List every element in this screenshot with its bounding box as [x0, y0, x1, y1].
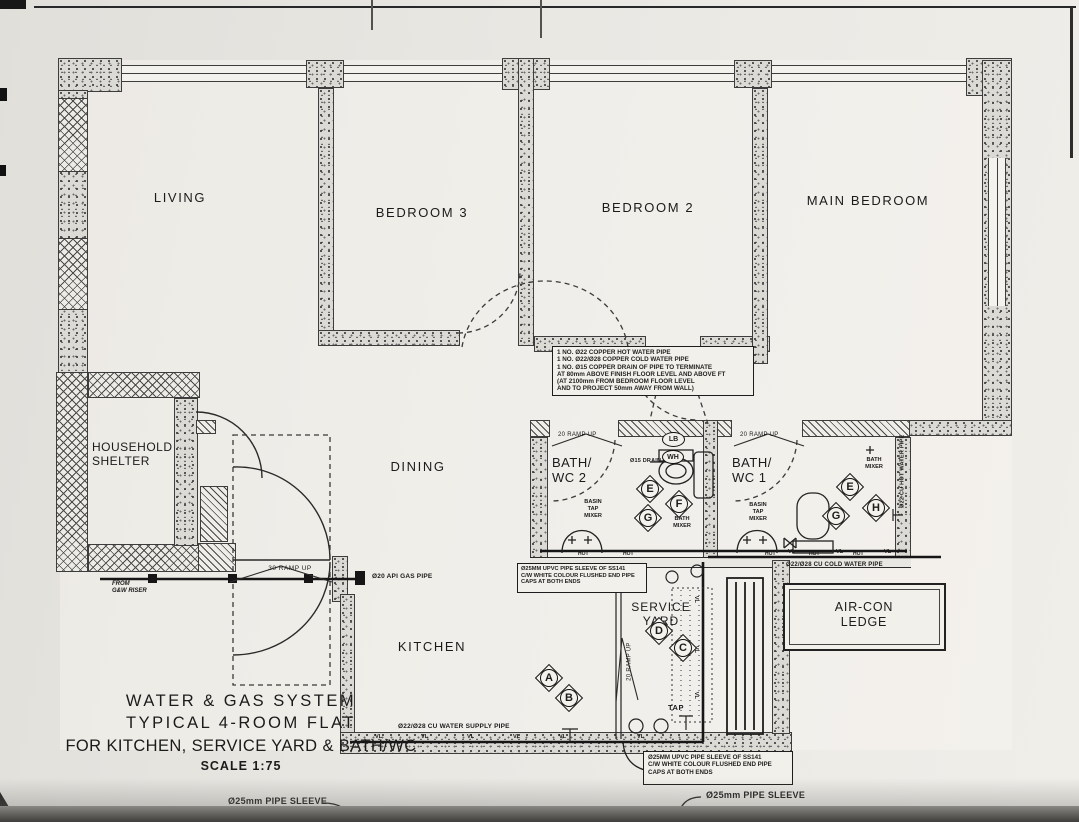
pipe-elbow-3 — [629, 719, 643, 733]
note-line: C/W WHITE COLOUR FLUSHED END PIPE — [648, 761, 788, 768]
bath1-mixer-symbol — [866, 446, 874, 454]
marker-letter: H — [867, 499, 885, 517]
title-line-1: WATER & GAS SYSTEM — [55, 692, 427, 711]
scan-shadow-band — [0, 778, 1079, 808]
riser-label: FROM G&W RISER — [112, 581, 147, 595]
vl-symbol: VL — [559, 734, 566, 741]
entrance-door-arc-upper — [233, 467, 330, 560]
ramp20-bath1-label: 20 RAMP UP — [740, 432, 779, 439]
bath-mixer-bath1: BATH MIXER — [852, 457, 896, 471]
hall-arch-dashed — [462, 281, 628, 347]
hot-symbol: HOT — [853, 552, 864, 558]
hot-symbol: HOT — [578, 552, 589, 558]
bath-mixer-bath2: BATH MIXER — [660, 516, 704, 530]
room-label-aircon-ledge: AIR-CON LEDGE — [808, 600, 920, 630]
basin-tap-mixer-bath2: BASIN TAP MIXER — [570, 499, 616, 520]
vl-symbol: VL — [884, 549, 891, 556]
pipe-marker-b: B — [557, 686, 581, 710]
room-label-dining: DINING — [368, 459, 468, 474]
bedroom3-door-arc — [458, 271, 520, 333]
vl-symbol: VL — [788, 549, 795, 556]
upvc-sleeve-note-mid: Ø25MM UPVC PIPE SLEEVE OF SS141 C/W WHIT… — [517, 563, 647, 593]
note-line: Ø25MM UPVC PIPE SLEEVE OF SS141 — [521, 566, 643, 573]
room-label-bath-wc-2: BATH/ WC 2 — [552, 455, 612, 486]
marker-letter: G — [639, 509, 657, 527]
vl-symbol: VL — [836, 549, 843, 556]
copper-pipe-note: 1 NO. Ø22 COPPER HOT WATER PIPE 1 NO. Ø2… — [552, 346, 754, 396]
note-line: AT 80mm ABOVE FINISH FLOOR LEVEL AND ABO… — [557, 371, 749, 378]
pipe-marker-g-bath2: G — [636, 506, 660, 530]
lb-tag: LB — [662, 432, 685, 447]
bath2-tub — [694, 452, 713, 498]
title-line-4: SCALE 1:75 — [55, 759, 427, 774]
title-line-2: TYPICAL 4-ROOM FLAT — [55, 714, 427, 733]
hot-symbol: HOT — [809, 552, 820, 558]
scan-tick-left-1 — [0, 88, 7, 101]
marker-letter: D — [650, 622, 668, 640]
scan-crease-1 — [371, 0, 373, 30]
note-line: 1 NO. Ø15 COPPER DRAIN OF PIPE TO TERMIN… — [557, 364, 749, 371]
bath1-basin-taps — [743, 536, 767, 544]
room-label-household-shelter: HOUSEHOLD SHELTER — [92, 440, 182, 468]
note-line: C/W WHITE COLOUR FLUSHED END PIPE — [521, 573, 643, 580]
room-label-bedroom3: BEDROOM 3 — [352, 205, 492, 220]
gas-pipe-end-fitting — [355, 571, 365, 585]
scan-crease-2 — [540, 0, 542, 38]
room-label-bedroom2: BEDROOM 2 — [578, 200, 718, 215]
pipe-marker-h-bath1: H — [864, 496, 888, 520]
note-line: Ø25MM UPVC PIPE SLEEVE OF SS141 — [648, 754, 788, 761]
pipe-elbow-2 — [691, 565, 703, 577]
pipe-elbow-4 — [654, 719, 668, 733]
hot-water-vertical-label: Ø22 CU HOT WATER PIPE — [900, 412, 907, 530]
sheet-border-top — [34, 6, 1076, 8]
bath1-valve — [784, 538, 796, 548]
vl-symbol: VL — [637, 734, 644, 741]
gas-pipe-label: Ø20 API GAS PIPE — [372, 573, 432, 581]
scan-mark-top-left — [0, 0, 26, 9]
hot-symbol: HOT — [765, 552, 776, 558]
pipe-marker-f-bath2: F — [667, 492, 691, 516]
scan-bottom-edge — [0, 806, 1079, 822]
wh-tag: WH — [662, 450, 684, 464]
pipe-marker-c: C — [671, 636, 695, 660]
note-leader-1 — [698, 394, 708, 424]
water-supply-label: Ø22/Ø28 CU WATER SUPPLY PIPE — [398, 723, 510, 731]
upvc-note-leader — [623, 742, 645, 770]
hot-symbol: HOT — [623, 552, 634, 558]
room-label-kitchen: KITCHEN — [382, 639, 482, 654]
note-line: (AT 2100mm FROM BEDROOM FLOOR LEVEL — [557, 378, 749, 385]
scan-tick-left-2 — [0, 165, 6, 176]
note-line: CAPS AT BOTH ENDS — [648, 769, 788, 776]
ramp30-label: 30 RAMP UP — [245, 565, 335, 573]
room-label-living: LIVING — [130, 190, 230, 205]
bath2-basin-taps — [568, 536, 592, 544]
marker-letter: E — [841, 478, 859, 496]
vl-symbol: VL — [375, 734, 382, 741]
note-leader-2 — [650, 394, 656, 420]
marker-letter: E — [641, 480, 659, 498]
title-line-3: FOR KITCHEN, SERVICE YARD & BATH/WC — [55, 737, 427, 756]
room-label-main-bedroom: MAIN BEDROOM — [788, 193, 948, 208]
marker-letter: B — [560, 689, 578, 707]
vl-symbol: VL — [692, 692, 699, 699]
vl-symbol: VL — [692, 596, 699, 603]
vl-symbol: VL — [421, 734, 428, 741]
tap-label: TAP — [668, 704, 684, 713]
sheet-border-right — [1070, 8, 1073, 158]
gas-pipe-union-1 — [148, 574, 157, 583]
marker-letter: F — [670, 495, 688, 513]
bath2-basin — [562, 531, 602, 554]
cold-water-label: Ø22/Ø28 CU COLD WATER PIPE — [786, 562, 883, 569]
vl-symbol: VL — [467, 734, 474, 741]
note-line: AND TO PROJECT 50mm AWAY FROM WALL) — [557, 385, 749, 392]
yard-tap-symbol — [679, 716, 693, 730]
pipe-marker-e-bath1: E — [838, 475, 862, 499]
pipe-elbow-1 — [666, 571, 678, 583]
basin-tap-mixer-bath1: BASIN TAP MIXER — [735, 502, 781, 523]
room-label-bath-wc-1: BATH/ WC 1 — [732, 455, 792, 486]
marker-letter: C — [674, 639, 692, 657]
floor-plan-scan: LIVING BEDROOM 3 BEDROOM 2 MAIN BEDROOM … — [0, 0, 1079, 822]
marker-letter: A — [540, 669, 558, 687]
title-block: WATER & GAS SYSTEM TYPICAL 4-ROOM FLAT F… — [55, 692, 427, 774]
pipe-marker-d: D — [647, 619, 671, 643]
ramp20-bath2-label: 20 RAMP UP — [558, 432, 597, 439]
pipe-marker-g-bath1: G — [824, 504, 848, 528]
note-line: 1 NO. Ø22 COPPER HOT WATER PIPE — [557, 349, 749, 356]
vl-symbol: VL — [513, 734, 520, 741]
note-line: 1 NO. Ø22/Ø28 COPPER COLD WATER PIPE — [557, 356, 749, 363]
ramp20-service-yard-label: 20 RAMP UP — [626, 632, 633, 692]
note-line: CAPS AT BOTH ENDS — [521, 579, 643, 586]
marker-letter: G — [827, 507, 845, 525]
pipe-marker-e-bath2: E — [638, 477, 662, 501]
bath1-basin — [737, 531, 777, 554]
